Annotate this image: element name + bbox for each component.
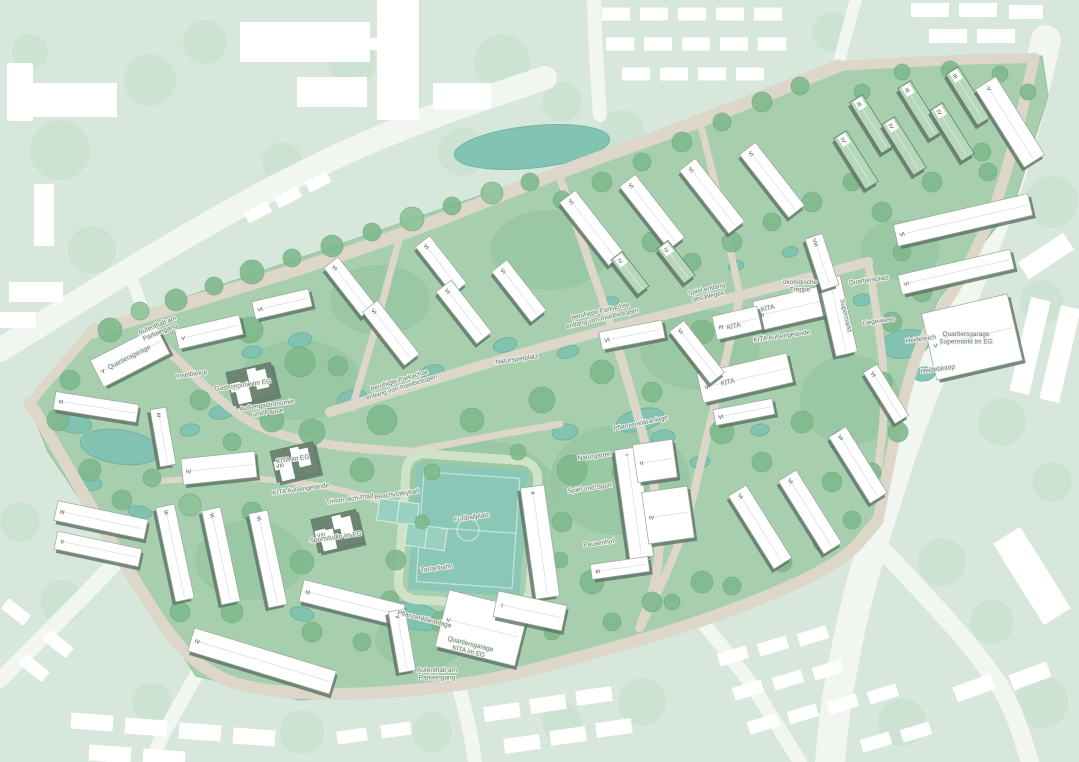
context-building [720,38,748,51]
context-building-roof [959,3,997,17]
tree-canopy [283,249,301,267]
context-building-roof [9,282,63,302]
tree-canopy [112,490,132,510]
context-building-roof [178,723,221,742]
context-building-roof [88,745,131,762]
context-building [7,63,33,121]
tree-canopy [386,550,406,570]
context-tree [618,678,666,726]
tree-canopy [131,302,149,320]
context-tree [1026,176,1078,228]
tree-canopy [350,458,374,482]
tree-canopy [290,550,314,574]
tree-canopy [424,464,440,480]
context-building [1009,5,1043,19]
context-tree [124,54,176,106]
context-building [644,38,672,51]
context-tree [918,538,966,586]
context-building [9,282,63,302]
tree-canopy [603,613,621,631]
context-building [716,8,744,21]
context-building-roof [660,68,688,81]
context-building-roof [602,8,630,21]
tree-canopy [510,444,526,460]
context-building-roof [682,38,710,51]
map-label: Aufenthalt amParkeingang [417,667,457,681]
masterplan-map-page: VVVIVIVIVIVIVIVIVIVIVIIVIVIVIIIIVIIIIVII… [0,0,1079,762]
tree-canopy [353,633,371,651]
tree-canopy [60,370,80,390]
tree-canopy [894,64,910,80]
tree-canopy [1020,84,1036,100]
context-building [682,38,710,51]
context-building-roof [720,38,748,51]
context-building [660,68,688,81]
tree-canopy [872,202,892,222]
context-building-roof [716,8,744,21]
context-building [232,728,275,747]
tree-canopy [802,192,822,212]
tree-canopy [205,277,223,295]
context-building [977,29,1015,43]
tree-canopy [223,433,241,451]
tree-canopy [752,92,772,112]
tree-canopy [143,469,161,487]
context-tree [978,398,1026,446]
tree-canopy [240,260,264,284]
tree-canopy [642,592,662,612]
tree-canopy [165,289,187,311]
context-building [698,68,726,81]
context-building-roof [368,38,384,50]
context-building [678,8,706,21]
context-tree [970,600,1014,644]
tree-canopy [973,143,991,161]
tree-canopy [552,512,572,532]
context-building-roof [736,68,764,81]
tree-canopy [791,411,813,433]
context-building [754,8,782,21]
tree-canopy [592,172,612,192]
building-numeral: IV [186,469,192,476]
context-building-roof [698,68,726,81]
context-building-roof [240,22,370,62]
context-tree [30,120,90,180]
building-II: II [633,439,681,486]
context-building-roof [622,68,650,81]
context-building-roof [34,184,54,246]
tree-canopy [843,511,861,529]
context-building-roof [640,8,668,21]
tree-canopy [367,405,397,435]
context-building-roof [232,728,275,747]
tree-canopy [791,77,809,95]
tree-canopy [328,356,348,376]
context-tree [280,710,324,754]
context-building-roof [754,8,782,21]
context-building-roof [0,312,36,328]
tree-canopy [79,459,101,481]
context-building-roof [929,29,967,43]
masterplan-map: VVVIVIVIVIVIVIVIVIVIVIIVIVIVIIIIVIIIIVII… [0,0,1079,762]
tree-canopy [190,390,210,410]
context-building-roof [7,63,33,121]
tree-canopy [590,360,614,384]
tree-canopy [321,235,343,257]
context-building-roof [911,3,949,17]
context-building [34,184,54,246]
context-building [377,0,419,120]
tree-canopy [415,515,429,529]
context-tree [68,226,116,274]
context-building [0,312,36,328]
tree-canopy [888,422,908,442]
context-road [594,0,600,115]
tree-canopy [822,472,842,492]
tree-canopy [285,347,315,377]
context-building [70,713,113,732]
context-building [929,29,967,43]
context-building [178,723,221,742]
context-tree [412,712,452,752]
context-building-roof [977,29,1015,43]
map-label-text: Aufenthalt amParkeingang [417,667,457,681]
tree-canopy [752,452,772,472]
tree-canopy [179,494,201,516]
context-building [433,83,491,109]
context-tree [0,502,40,542]
tree-canopy [672,132,692,152]
building-IV: IV [642,486,698,548]
tree-canopy [443,197,461,215]
tree-canopy [642,382,662,402]
tree-canopy [400,207,424,231]
tree-canopy [664,594,680,610]
tree-canopy [460,408,484,432]
tree-canopy [299,419,325,445]
context-building-roof [606,38,634,51]
context-building [88,745,131,762]
context-building [602,8,630,21]
context-building [240,22,370,62]
context-tree [1032,462,1072,502]
map-label-text: QuartiersgarageSupermarkt im EG [939,331,992,345]
context-building [959,3,997,17]
context-building [606,38,634,51]
tree-canopy [722,232,742,252]
context-building [640,8,668,21]
tree-canopy [302,622,322,642]
tree-canopy [98,318,122,342]
tree-canopy [691,571,713,593]
tree-canopy [633,153,651,171]
context-building [736,68,764,81]
context-tree [183,20,227,64]
tree-canopy [481,182,503,204]
context-building-roof [758,38,786,51]
context-building-roof [297,77,367,107]
context-building-roof [1009,5,1043,19]
context-building-roof [377,0,419,120]
context-building [758,38,786,51]
context-building-roof [124,718,167,737]
tree-canopy [763,213,781,231]
tree-canopy [713,113,731,131]
tree-canopy [521,173,539,191]
context-building-roof [70,713,113,732]
tree-canopy [922,172,942,192]
tree-canopy [979,163,997,181]
context-building [622,68,650,81]
tree-canopy [363,223,381,241]
context-building-roof [644,38,672,51]
tree-canopy [529,387,555,413]
tree-canopy [723,577,741,595]
context-building-roof [678,8,706,21]
context-building [297,77,367,107]
map-label: QuartiersgarageSupermarkt im EG [939,331,992,345]
context-building [124,718,167,737]
context-building [911,3,949,17]
context-building-roof [433,83,491,109]
context-building [368,38,384,50]
